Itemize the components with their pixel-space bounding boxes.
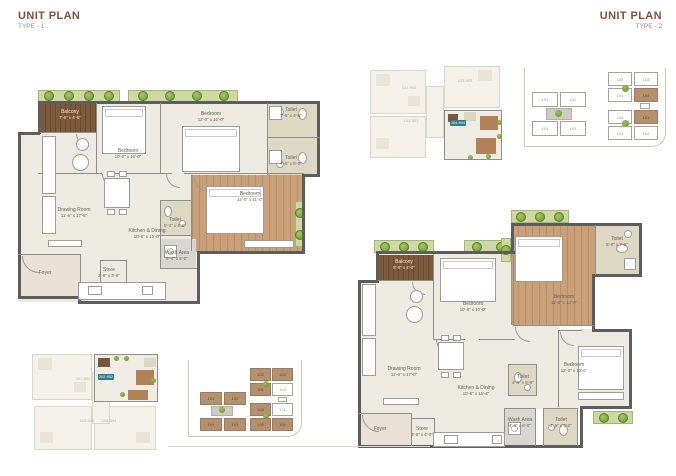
tree-icon [263,381,269,387]
room-label-bedroom1: Bedroom 10'-0" x 10'-0" [103,148,153,160]
round-chair [76,138,89,151]
wall-inner-segment [100,260,127,261]
wall-outer-segment [639,223,642,277]
room-label-toilet1: Toilet 7'-6" x 4'-6" [266,107,316,119]
site-unit: 103 [634,72,658,86]
dining-chair [441,335,449,341]
site-unit-number: 104 [257,407,264,412]
room-label-store: Store 3'-6" x 4'-0" [402,426,442,438]
tree-icon [219,407,225,413]
bed [102,106,146,154]
ground-line [168,446,430,447]
dining-chair [119,209,127,215]
site-unit-number: 103 [257,422,264,427]
room-label-toilet3: Toilet 4'-6" x 5'-0" [536,417,586,429]
keyplan-unit-label: 101-901 [394,118,428,123]
wall-inner-segment [40,132,96,133]
tree-icon [497,134,502,139]
sofa [362,338,376,376]
wall-inner-segment [508,364,537,365]
wall-inner-segment [160,268,197,269]
sink-icon [142,286,153,295]
tree-icon [114,356,119,361]
room-dim: 10'-6" x 15'-4" [450,391,502,396]
room-label-toilet3: Toilet 5'-2" x 4'-6" [150,217,200,229]
room-dim: 5'-0" x 7'-6" [592,242,642,247]
room-label-wash: Wash Area 5'-4" x 5'-0" [152,250,202,262]
round-chair [72,154,89,171]
site-unit-number: 104 [208,422,215,427]
keyplan-highlight-label: 202-902 [98,374,114,380]
keyplan-highlight-label: 104-904 [450,120,466,126]
keyplan-core [426,86,444,138]
keyplan-balcony [98,358,110,367]
site-unit: 103 [608,126,632,140]
room-label-store: Store 2'-6" x 3'-6" [87,267,131,279]
room-name: Foyer [20,270,70,276]
tree-icon [516,212,526,222]
wall-outer-segment [629,329,632,409]
site-unit-number: 104 [542,126,549,131]
siteplan-type2: 101 102 104 103 102 103 101 104 104 101 … [518,62,668,150]
site-unit-number: 104 [643,93,650,98]
floor-plan-type1: Balcony 7'-6" x 4'-6" Bedroom 10'-0" x 1… [14,90,330,316]
room-label-bedroom3: Bedroom 12'-0" x 10'-6" [548,362,600,374]
tree-icon [64,91,74,101]
keyplan-ghost-patch [376,138,389,149]
tv-console [383,398,419,405]
shower-icon [624,258,636,270]
keyplan-unit-label: 204-904 [98,418,120,423]
site-unit-number: 103 [232,422,239,427]
site-unit-number: 103 [643,77,650,82]
site-unit-number: 102 [279,422,286,427]
room-dim: 3'-6" x 4'-0" [402,432,442,437]
sofa [362,284,376,336]
wc-icon [164,206,172,217]
site-link [640,103,650,109]
wall-inner-segment [96,103,97,173]
keyplan-unit-label: 102-902 [392,85,426,90]
keyplan-bedroom [476,138,496,154]
wall-outer-segment [38,101,320,104]
tree-icon [84,91,94,101]
wall-inner-segment [508,395,537,396]
planter [501,238,511,262]
keyplan-ghost-patch [408,96,420,106]
tree-icon [120,392,125,397]
wall-outer-segment [38,101,41,134]
tree-icon [138,91,148,101]
site-unit-number: 101 [542,97,549,102]
wall-inner-segment [543,408,577,409]
tree-icon [418,242,428,252]
site-unit-number: 103 [279,372,286,377]
dining-chair [453,335,461,341]
room-label-drawing: Drawing Room 11'-6" x 17'-0" [378,366,430,378]
keyplan-bedroom [128,390,148,400]
planter [593,411,633,424]
room-dim: 4'-6" x 5'-6" [498,380,548,385]
wall-inner-segment [184,173,304,174]
site-unit-number: 103 [570,126,577,131]
round-chair [406,306,423,323]
room-label-bedroom1: Bedroom 10'-0" x 10'-0" [449,301,497,313]
hob-icon [444,435,458,444]
site-unit-highlight: 102 [250,368,271,381]
wall-outer-segment [197,251,305,254]
site-unit-highlight: 102 [224,392,246,405]
wall-inner-segment [595,225,596,275]
tree-icon [599,413,609,423]
wall-inner-segment [504,408,536,409]
wall-outer-segment [18,132,40,135]
wall-outer-segment [592,274,595,332]
wall-outer-segment [302,174,305,254]
site-unit-number: 104 [617,115,624,120]
site-unit-highlight: 104 [634,88,658,102]
site-unit-number: 102 [232,396,239,401]
tree-icon [124,356,129,361]
site-unit: 104 [272,383,293,396]
room-dim: 11'-0" x 14'-0" [538,300,590,305]
site-unit-number: 102 [617,77,624,82]
room-dim: 10'-0" x 10'-0" [103,154,153,159]
plan1-title: UNIT PLAN [18,10,80,22]
room-dim: 11'-6" x 17'-0" [378,372,430,377]
site-unit-number: 102 [643,131,650,136]
wall-outer-segment [317,101,320,177]
sofa [42,136,56,194]
keyplan-unit-label: 203-903 [76,418,98,423]
site-unit-number: 102 [257,372,264,377]
wall-inner-segment [267,137,320,138]
room-dim: 5'-2" x 4'-6" [150,223,200,228]
room-name: Foyer [360,426,400,432]
tree-icon [472,242,482,252]
dining-chair [119,171,127,177]
room-dim: 8'-0" x 4'-0" [383,265,425,270]
room-dim: 2'-6" x 3'-6" [87,273,131,278]
plan2-header: UNIT PLAN TYPE - 2 [600,10,662,30]
wall-outer-segment [78,301,199,304]
room-dim: 7'-6" x 4'-6" [266,113,316,118]
room-dim: 12'-0" x 10'-0" [186,117,236,122]
room-dim: 12'-0" x 10'-6" [548,368,600,373]
site-unit-number: 101 [643,115,650,120]
tree-icon [104,91,114,101]
room-label-foyer: Foyer [20,270,70,276]
dining-chair [107,171,115,177]
tree-icon [468,155,473,160]
wall-inner-segment [479,339,515,340]
wall-outer-segment [18,296,81,299]
keyplan-toilet [144,358,156,367]
wall-inner-segment [513,254,514,326]
site-unit: 103 [560,121,586,136]
bed [515,236,563,282]
site-unit-number: 104 [279,387,286,392]
dining-chair [441,372,449,378]
tree-icon [554,212,564,222]
room-dim: 11'-6" x 17'-6" [44,213,104,218]
floor-plan-type2: Balcony 8'-0" x 4'-0" Bedroom 10'-0" x 1… [352,196,672,456]
dining-chair [107,209,115,215]
room-label-drawing: Drawing Room 11'-6" x 17'-6" [44,207,104,219]
tree-icon [535,212,545,222]
keyplan-ghost-patch [38,358,52,370]
plan1-header: UNIT PLAN TYPE - 1 [18,10,80,30]
wall-outer-segment [592,329,632,332]
plan2-title: UNIT PLAN [600,10,662,22]
site-unit-highlight: 103 [272,368,293,381]
site-unit: 101 [272,403,293,416]
tree-icon [399,242,409,252]
keyplan-type1: 201-901 202-902 203-903 204-904 [32,348,178,454]
tree-icon [618,413,628,423]
wall-inner-segment [411,418,434,419]
site-unit-highlight: 103 [250,418,271,431]
room-label-balcony: Balcony 7'-6" x 4'-6" [50,109,90,121]
wall-inner-segment [433,254,434,340]
site-unit-highlight: 101 [634,110,658,124]
wall-outer-segment [595,274,642,277]
tree-icon [44,91,54,101]
room-label-toilet2: Toilet 4'-6" x 5'-6" [498,374,548,386]
wall-outer-segment [358,280,378,283]
tree-icon [555,110,562,117]
wall-outer-segment [376,251,515,254]
wall-inner-segment [160,103,161,173]
site-unit-number: 103 [617,131,624,136]
room-label-bedroom2: Bedroom 12'-0" x 10'-0" [186,111,236,123]
wall-outer-segment [376,253,379,283]
planter [511,210,569,223]
wall-outer-segment [358,280,361,448]
dining-table [438,342,464,370]
site-unit-number: 101 [257,387,264,392]
tree-icon [151,378,156,383]
site-unit-number: 101 [617,93,624,98]
site-unit: 101 [532,92,558,107]
wall-inner-segment [558,330,582,331]
plan2-subtitle: TYPE - 2 [600,23,662,30]
keyplan-ghost-patch [136,432,150,443]
tree-icon [165,91,175,101]
site-unit-highlight: 102 [272,418,293,431]
room-dim: 14'-0" x 11'-0" [220,197,280,202]
round-chair [410,290,423,303]
room-dim: 4'-6" x 5'-0" [536,423,586,428]
site-unit: 102 [560,92,586,107]
keyplan-ghost-patch [40,432,53,443]
bed [182,126,240,172]
room-label-kitchen: Kitchen & Dining 10'-6" x 15'-4" [450,385,502,397]
wall-outer-segment [511,223,514,254]
room-label-foyer: Foyer [360,426,400,432]
sink-icon [492,435,502,444]
dining-chair [453,372,461,378]
site-unit: 102 [634,126,658,140]
wall-outer-segment [580,406,632,409]
tree-icon [192,91,202,101]
room-label-toilet2: Toilet 7'-6" x 5'-0" [266,155,316,167]
room-label-master: Bedroom 14'-0" x 11'-0" [220,191,280,203]
site-link [278,397,287,402]
keyplan-ghost-patch [74,382,86,392]
room-dim: 7'-6" x 4'-6" [50,115,90,120]
site-unit-number: 102 [570,97,577,102]
site-unit: 104 [532,121,558,136]
site-unit-highlight: 104 [200,418,222,431]
keyplan-ghost-patch [376,74,390,86]
room-dim: 7'-6" x 5'-0" [266,161,316,166]
room-dim: 10'-6" x 15'-0" [117,234,177,239]
wall-inner-segment [18,254,80,255]
tree-icon [486,154,491,159]
wall-inner-segment [191,175,192,251]
keyplan-bedroom [480,116,498,130]
keyplan-unit-label: 103-903 [448,78,482,83]
site-unit-number: 101 [279,407,286,412]
dining-table [104,178,130,208]
room-label-toilet1: Toilet 5'-0" x 7'-6" [592,236,642,248]
hob-icon [88,286,102,295]
site-unit-highlight: 101 [200,392,222,405]
room-dim: 5'-4" x 5'-0" [152,256,202,261]
site-unit: 102 [608,72,632,86]
unit-plan-sheet: UNIT PLAN TYPE - 1 UNIT PLAN TYPE - 2 [0,0,676,476]
tree-icon [380,242,390,252]
wardrobe [578,392,624,400]
wall-inner-segment [513,325,595,326]
tree-icon [219,91,229,101]
wall-outer-segment [511,223,642,226]
wall-inner-segment [358,413,411,414]
wall-inner-segment [160,200,191,201]
keyplan-type2: 102-902 103-903 101-901 104-904 [368,58,504,162]
room-label-balcony: Balcony 8'-0" x 4'-0" [383,259,425,271]
bed [440,258,496,302]
room-label-master: Bedroom 11'-0" x 14'-0" [538,294,590,306]
keyplan-unit-label: 201-901 [72,376,94,381]
wardrobe [244,240,294,248]
room-dim: 10'-0" x 10'-0" [449,307,497,312]
room-label-kitchen: Kitchen & Dining 10'-6" x 15'-0" [117,228,177,240]
tree-icon [622,85,629,92]
site-unit-number: 101 [208,396,215,401]
tree-icon [497,120,502,125]
siteplan-type1: 101 102 104 103 102 103 101 104 104 101 … [180,352,312,444]
wall-outer-segment [304,174,320,177]
tv-console [48,240,82,247]
wall-inner-segment [378,280,434,281]
site-unit-highlight: 103 [224,418,246,431]
plan1-subtitle: TYPE - 1 [18,23,80,30]
keyplan-ghost-unit [34,406,92,450]
